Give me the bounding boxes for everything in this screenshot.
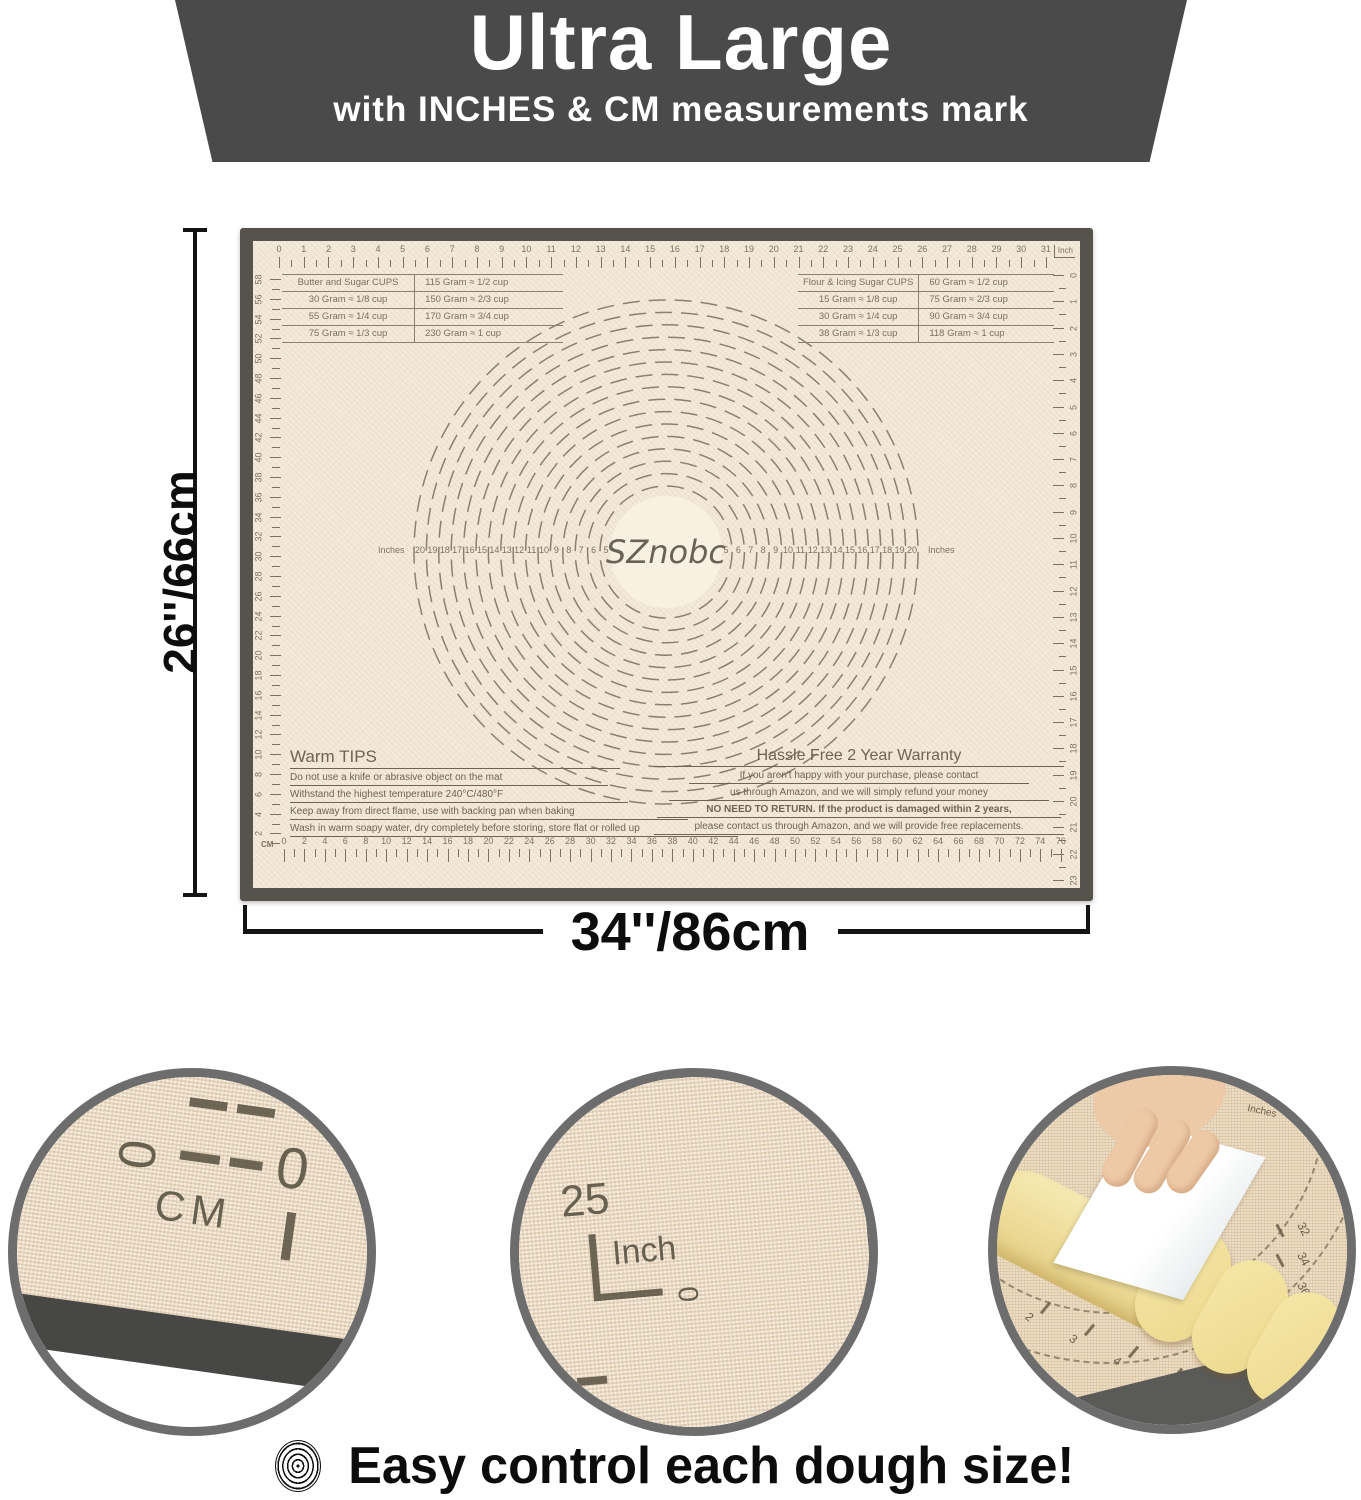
tick [229,1157,263,1171]
mat-corner-inch: 25 Inch 0 [510,1068,878,1436]
warranty-line: If you aren't happy with your purchase, … [689,767,1029,784]
pastry-mat: 0123456789101112131415161718192021222324… [240,228,1093,901]
warranty-line: us through Amazon, and we will simply re… [669,784,1049,801]
tick [1275,1254,1284,1268]
table-row: 30 Gram ≈ 1/4 cup90 Gram ≈ 3/4 cup [798,309,1054,326]
height-dimension-label: 26''/66cm [148,422,212,722]
table-cell: 60 Gram ≈ 1/2 cup [919,278,1054,288]
table-row: 38 Gram ≈ 1/3 cup118 Gram ≈ 1 cup [798,326,1054,343]
table-cell: 90 Gram ≈ 3/4 cup [919,312,1054,322]
table-row: 55 Gram ≈ 1/4 cup170 Gram ≈ 3/4 cup [282,309,563,326]
table-cell: 230 Gram ≈ 1 cup [415,329,563,339]
caption-text: Easy control each dough size! [349,1436,1075,1496]
scale-label: Inches [928,546,955,555]
table-cell: 55 Gram ≈ 1/4 cup [282,309,415,325]
tick [281,1212,297,1261]
detail-circle-inch-corner: 25 Inch 0 [510,1068,878,1436]
table-cell: 30 Gram ≈ 1/4 cup [798,309,919,325]
table-cell: 118 Gram ≈ 1 cup [919,329,1054,339]
mat-corner-cm: 2 0 CM 0 [8,1068,376,1395]
table-cell: 115 Gram ≈ 1/2 cup [415,278,563,288]
table-row: Flour & Icing Sugar CUPS60 Gram ≈ 1/2 cu… [798,274,1054,292]
table-cell: 15 Gram ≈ 1/8 cup [798,292,919,308]
cm-zero-number: 0 [272,1138,312,1200]
table-row: Butter and Sugar CUPS115 Gram ≈ 1/2 cup [282,274,563,292]
table-cell: 30 Gram ≈ 1/8 cup [282,292,415,308]
banner-title: Ultra Large [470,2,893,84]
width-dimension-line-left [243,929,543,934]
tick [1084,1324,1095,1337]
tick [1040,1302,1051,1315]
table-cell: Flour & Icing Sugar CUPS [798,275,919,291]
tick [510,1266,514,1312]
detail-circle-dough-photo: Inches 3234363840424465432 [988,1066,1356,1434]
warranty-line: NO NEED TO RETURN. If the product is dam… [657,801,1061,818]
caption: Easy control each dough size! [0,1436,1361,1496]
warm-tips-line: Withstand the highest temperature 240°C/… [290,786,628,803]
mat-surface: 0123456789101112131415161718192021222324… [253,241,1080,888]
tick [237,1104,276,1118]
banner-subtitle: with INCHES & CM measurements mark [333,90,1028,130]
table-row: 15 Gram ≈ 1/8 cup75 Gram ≈ 2/3 cup [798,292,1054,309]
tick [577,1376,608,1387]
flour-sugar-table: Flour & Icing Sugar CUPS60 Gram ≈ 1/2 cu… [798,274,1054,343]
warranty-title: Hassle Free 2 Year Warranty [654,747,1064,767]
product-infographic: Ultra Large with INCHES & CM measurement… [0,0,1361,1500]
banner: Ultra Large with INCHES & CM measurement… [175,0,1187,162]
cm-unit-label: CM [152,1184,234,1236]
concentric-circles-icon [275,1440,321,1492]
warm-tips-line: Keep away from direct flame, use with ba… [290,803,688,820]
inch-corner-zero: 0 [673,1285,702,1303]
tick [1128,1346,1139,1359]
height-dimension-cap-top [183,228,207,232]
photo-ruler-number: 2 [1023,1310,1036,1323]
scale-number: 20 [904,546,920,555]
width-dimension-label: 34''/86cm [540,900,840,964]
table-cell: 38 Gram ≈ 1/3 cup [798,326,919,342]
photo-ruler-number: 32 [1295,1220,1312,1237]
detail-circle-cm-corner: 2 0 CM 0 [8,1068,376,1436]
table-row: 75 Gram ≈ 1/3 cup230 Gram ≈ 1 cup [282,326,563,343]
width-dimension-line-right [838,929,1090,934]
photo-ruler-number: 4 [1111,1354,1124,1367]
butter-sugar-table: Butter and Sugar CUPS115 Gram ≈ 1/2 cup3… [282,274,563,343]
warm-tips-title: Warm TIPS [290,747,620,769]
tick [189,1097,228,1111]
table-cell: Butter and Sugar CUPS [282,275,415,291]
width-dimension-cap-left [243,905,247,934]
brand-logo: SZnobc [596,533,736,571]
photo-ruler-number: 34 [1295,1250,1312,1267]
width-dimension-cap-right [1086,905,1090,934]
table-row: 30 Gram ≈ 1/8 cup150 Gram ≈ 2/3 cup [282,292,563,309]
warranty-block: Hassle Free 2 Year Warranty If you aren'… [654,747,1064,835]
tick [180,1150,221,1164]
table-cell: 75 Gram ≈ 1/3 cup [282,326,415,342]
scale-label: Inches [378,546,405,555]
warm-tips-line: Do not use a knife or abrasive object on… [290,769,608,786]
inch-corner-number-25: 25 [559,1177,612,1225]
cm-corner-number-0: 0 [109,1136,165,1172]
table-cell: 150 Gram ≈ 2/3 cup [415,295,563,305]
height-dimension-cap-bottom [183,893,207,897]
table-cell: 75 Gram ≈ 2/3 cup [919,295,1054,305]
photo-ruler-number: 3 [1067,1332,1080,1345]
table-cell: 170 Gram ≈ 3/4 cup [415,312,563,322]
inch-unit-label: Inch [611,1231,678,1270]
warranty-line: please contact us through Amazon, and we… [654,818,1064,835]
tick [1275,1224,1284,1238]
